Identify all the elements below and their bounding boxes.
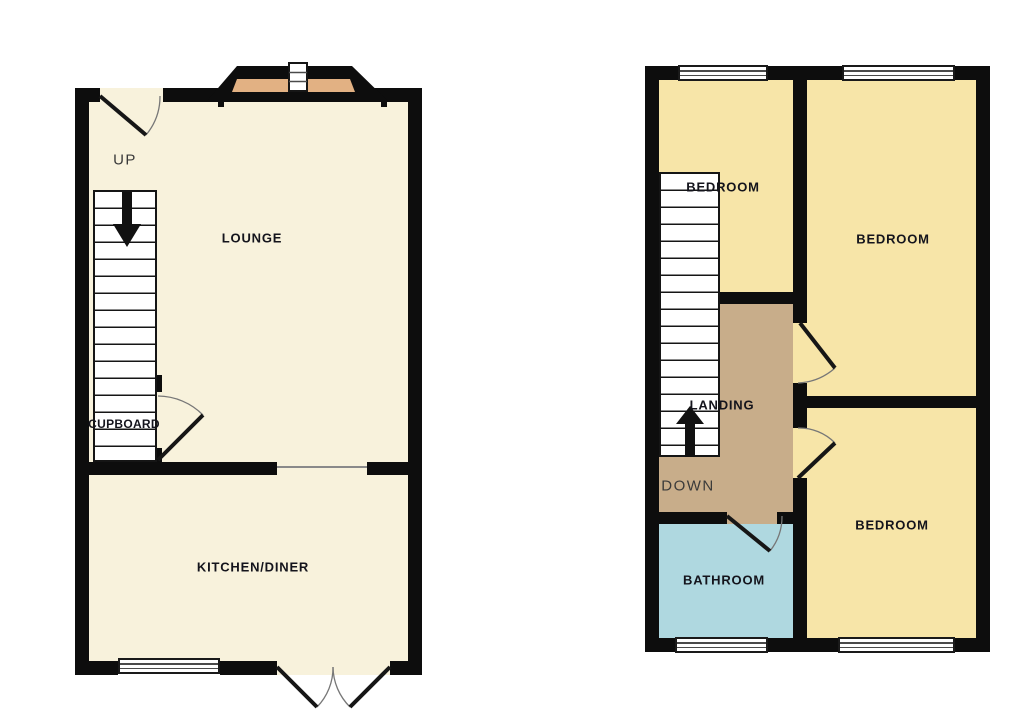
wall — [408, 88, 422, 675]
room-opening-line — [277, 466, 367, 468]
wall — [75, 88, 100, 102]
wall — [220, 661, 277, 675]
bedroom-top-left-label: BEDROOM — [686, 180, 760, 195]
wall — [976, 66, 990, 652]
wall-stub — [777, 512, 793, 524]
french-door-opening-floor — [277, 661, 390, 675]
wall — [793, 396, 976, 408]
window-symbol — [118, 658, 220, 674]
wall — [645, 638, 675, 652]
wall — [75, 88, 89, 675]
wall — [390, 661, 422, 675]
lounge-kitchen-opening-floor — [277, 462, 367, 475]
door-opening-floor — [727, 512, 777, 524]
bay-window-glass-icon — [289, 63, 307, 91]
wall — [75, 661, 118, 675]
lounge-label: LOUNGE — [222, 231, 282, 246]
bedroom-bottom-right-label: BEDROOM — [855, 518, 929, 533]
floorplan-canvas: UP LOUNGE CUPBOARD KITCHEN/DINER — [0, 0, 1020, 721]
window-symbol — [842, 65, 955, 81]
front-door-opening-floor — [100, 88, 163, 102]
wall — [367, 462, 422, 475]
bathroom-label: BATHROOM — [683, 573, 765, 588]
up-label: UP — [113, 152, 137, 169]
wall — [645, 66, 659, 652]
staircase-down — [659, 172, 720, 457]
wall — [645, 512, 727, 524]
kitchen-diner-label: KITCHEN/DINER — [197, 560, 309, 575]
window-symbol — [838, 637, 955, 653]
wall — [89, 462, 277, 475]
wall — [793, 478, 807, 652]
wall — [793, 66, 807, 323]
window-symbol — [675, 637, 768, 653]
wall — [720, 292, 793, 304]
wall — [645, 66, 678, 80]
down-label: DOWN — [661, 478, 715, 495]
wall — [163, 88, 422, 102]
landing-label: LANDING — [690, 398, 755, 413]
door-opening-floor — [793, 428, 807, 478]
door-opening-floor — [793, 323, 807, 385]
bedroom-top-right-label: BEDROOM — [856, 232, 930, 247]
wall — [955, 638, 990, 652]
wall — [955, 66, 990, 80]
cupboard-label: CUPBOARD — [88, 417, 160, 431]
window-symbol — [678, 65, 768, 81]
